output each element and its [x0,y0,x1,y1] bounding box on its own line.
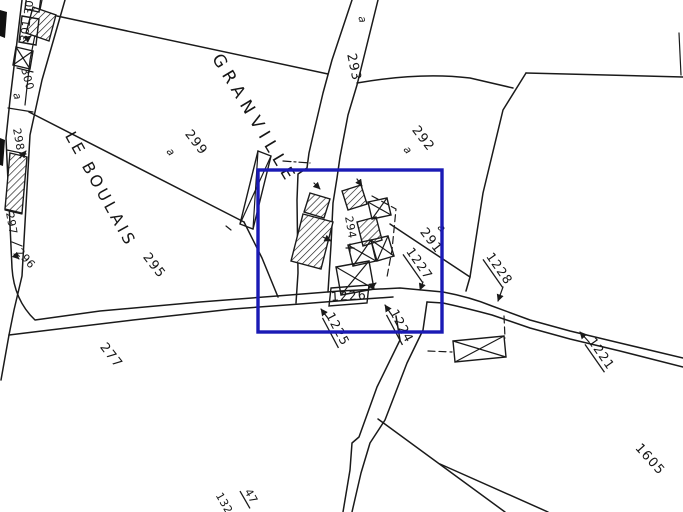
parcel-label-292a: a [401,144,414,156]
parcel-label-299: 299 [181,127,210,158]
cadastral-map: GRANVILLE LE BOULAIS a 293 299 a 292 a 2… [0,0,683,512]
svg-text:1226: 1226 [330,287,367,304]
place-name-le-boulais: LE BOULAIS [61,128,140,250]
parcel-label-299a: a [164,146,177,158]
map-labels: GRANVILLE LE BOULAIS a 293 299 a 292 a 2… [3,0,667,512]
road-tag-1224: 1224 [385,305,417,346]
east-building-dash-left [428,351,452,352]
boundary-southeast-a [378,419,505,512]
svg-text:1221: 1221 [585,334,618,372]
tick-yard-plus [346,244,354,252]
arrow-yard-1 [314,183,320,189]
parcel-label-277: 277 [96,340,125,371]
building-solid-edge-top [0,10,7,38]
parcel-label-296: 296 [13,246,38,271]
road-label-a: a [355,15,368,24]
parcel-label-1605: 1605 [632,441,668,479]
buildings [0,7,506,362]
parcel-label-clipped-left: 132 [213,490,236,512]
boundary-granville [57,16,328,74]
building-hatched-a [304,193,330,218]
cadastral-map-page: GRANVILLE LE BOULAIS a 293 299 a 292 a 2… [0,0,683,512]
parcel-label-298: 298 [10,127,27,151]
parcel-label-295: 295 [139,250,168,281]
road-lower-edge-east [427,302,683,367]
parcel-label-300: 300 [18,67,36,92]
boundary-292-north [357,76,513,88]
building-solid-edge-mid [0,138,5,166]
boundary-northeast [526,73,683,77]
parcel-label-clipped-right: 47 [240,484,262,508]
boundary-yard-west [244,222,278,297]
road-tag-1221: 1221 [580,332,618,373]
boundary-299-295 [29,112,244,222]
building-crossed-tall-west [240,151,271,229]
svg-text:1225: 1225 [323,310,353,349]
svg-text:47: 47 [242,487,261,506]
boundary-277-west [1,335,9,380]
road-tag-1228: 1228 [482,249,516,301]
parcel-label-294: 294 [342,215,359,239]
tick-quad-base [226,226,231,230]
south-road-west [343,316,400,512]
strip-cross-5 [12,242,22,246]
parcel-boundaries [1,0,683,512]
parcel-label-301: 301 [18,19,34,43]
parcel-label-297: 297 [3,211,20,235]
svg-text:1224: 1224 [387,307,417,346]
parcel-label-300a: a [10,92,23,101]
building-hatched-c [342,185,367,210]
building-crossed-d [368,198,391,219]
boundary-ne-spur [679,33,681,75]
svg-text:1228: 1228 [483,249,516,287]
road-tag-1225: 1225 [321,309,353,349]
road-tag-1226: 1226 [329,283,376,306]
building-hatched-strip-mid [5,153,27,213]
road-label-293: 293 [343,52,363,82]
building-crossed-east [453,336,506,362]
